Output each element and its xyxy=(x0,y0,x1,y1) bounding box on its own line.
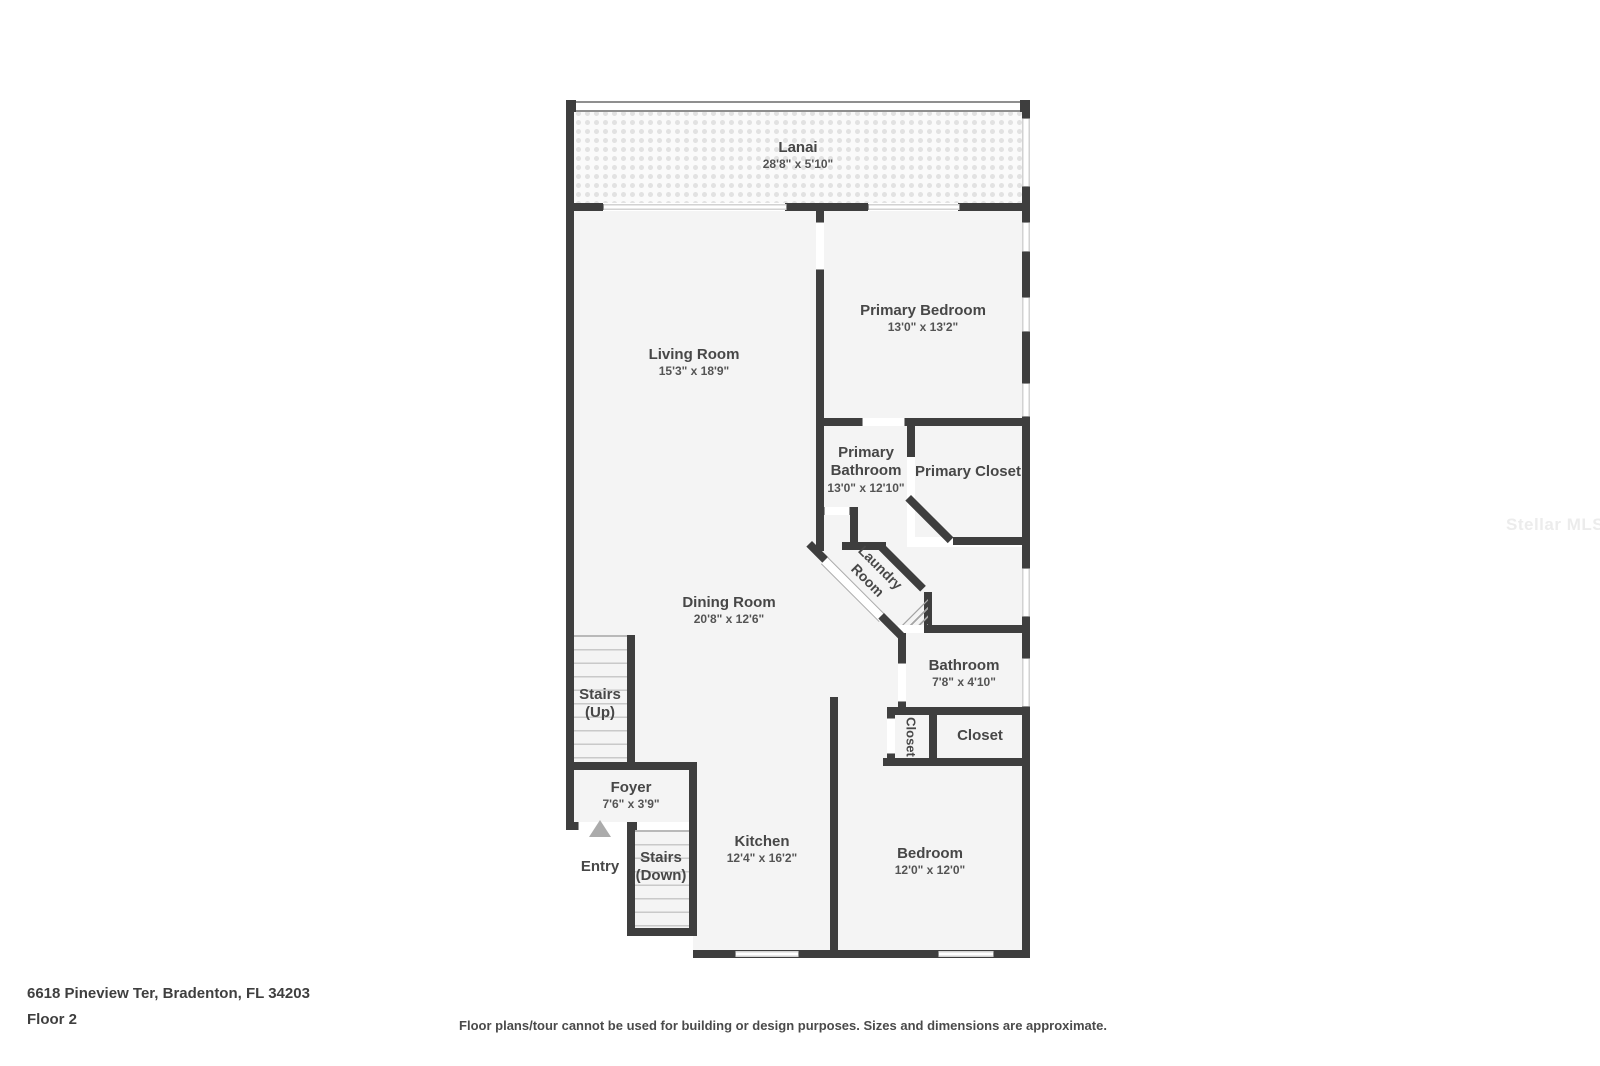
window xyxy=(1022,222,1030,252)
room-label-bathroom: Bathroom xyxy=(929,657,1000,675)
wall xyxy=(785,203,868,211)
property-address: 6618 Pineview Ter, Bradenton, FL 34203 xyxy=(27,985,310,1002)
room-dims-foyer: 7'6" x 3'9" xyxy=(602,797,659,811)
window xyxy=(1022,297,1030,332)
room-label-closet-small: Closet xyxy=(904,717,919,757)
room-label-primary-bedroom: Primary Bedroom xyxy=(860,302,986,320)
room-dims-living: 15'3" x 18'9" xyxy=(659,364,729,378)
window xyxy=(1022,383,1030,417)
room-label-stairs-up: Stairs (Up) xyxy=(572,686,628,722)
entry-label: Entry xyxy=(581,858,619,876)
window xyxy=(1022,118,1030,187)
room-label-dining: Dining Room xyxy=(682,594,775,612)
wall-bedroom-top xyxy=(883,758,1022,766)
room-dims-bedroom: 12'0" x 12'0" xyxy=(895,863,965,877)
slider-door xyxy=(603,204,787,210)
wall-stairs-up xyxy=(627,635,635,770)
floor-plan-page: Lanai 28'8" x 5'10" Living Room 15'3" x … xyxy=(0,0,1600,1066)
room-dims-bathroom: 7'8" x 4'10" xyxy=(932,675,996,689)
wall-foyer-top xyxy=(566,762,697,770)
wall-stairs-down-bottom xyxy=(627,928,697,936)
slider-door xyxy=(868,204,960,210)
room-dims-primary-bedroom: 13'0" x 13'2" xyxy=(888,320,958,334)
floor-number: Floor 2 xyxy=(27,1011,77,1028)
room-dims-kitchen: 12'4" x 16'2" xyxy=(727,851,797,865)
window xyxy=(1022,568,1030,617)
room-label-primary-bathroom: Primary Bathroom xyxy=(816,444,916,480)
room-label-stairs-down: Stairs (Down) xyxy=(622,849,700,885)
stellar-mls-watermark: Stellar MLS xyxy=(1506,515,1600,535)
room-dims-lanai: 28'8" x 5'10" xyxy=(763,157,833,171)
room-label-lanai: Lanai xyxy=(778,139,817,157)
wall-closet-top xyxy=(890,707,1022,715)
room-label-closet: Closet xyxy=(957,727,1003,745)
disclaimer-text: Floor plans/tour cannot be used for buil… xyxy=(459,1018,1107,1033)
room-dims-dining: 20'8" x 12'6" xyxy=(694,612,764,626)
wall-closet-divider xyxy=(929,715,937,758)
room-label-primary-closet: Primary Closet xyxy=(915,463,1021,481)
lanai-screen-wall xyxy=(566,101,1030,112)
hallway-floor xyxy=(816,625,898,766)
room-label-kitchen: Kitchen xyxy=(734,833,789,851)
entry-arrow-icon xyxy=(589,820,611,837)
door-opening xyxy=(898,663,906,702)
window xyxy=(735,951,799,957)
window xyxy=(938,951,994,957)
wall xyxy=(566,203,603,211)
door-opening xyxy=(816,222,824,270)
window xyxy=(1022,658,1030,707)
room-label-living: Living Room xyxy=(649,346,740,364)
room-label-bedroom: Bedroom xyxy=(897,845,963,863)
wall xyxy=(958,203,1030,211)
door-opening xyxy=(824,507,850,515)
door-opening xyxy=(887,718,895,754)
room-label-foyer: Foyer xyxy=(611,779,652,797)
wall-primary-bedroom xyxy=(824,418,1022,426)
wall-primary-closet-bottom xyxy=(953,537,1022,545)
door-opening xyxy=(862,418,905,426)
wall-kitchen-bedroom xyxy=(830,697,838,958)
wall-bathroom-top xyxy=(924,625,1022,633)
room-dims-primary-bathroom: 13'0" x 12'10" xyxy=(827,481,904,495)
